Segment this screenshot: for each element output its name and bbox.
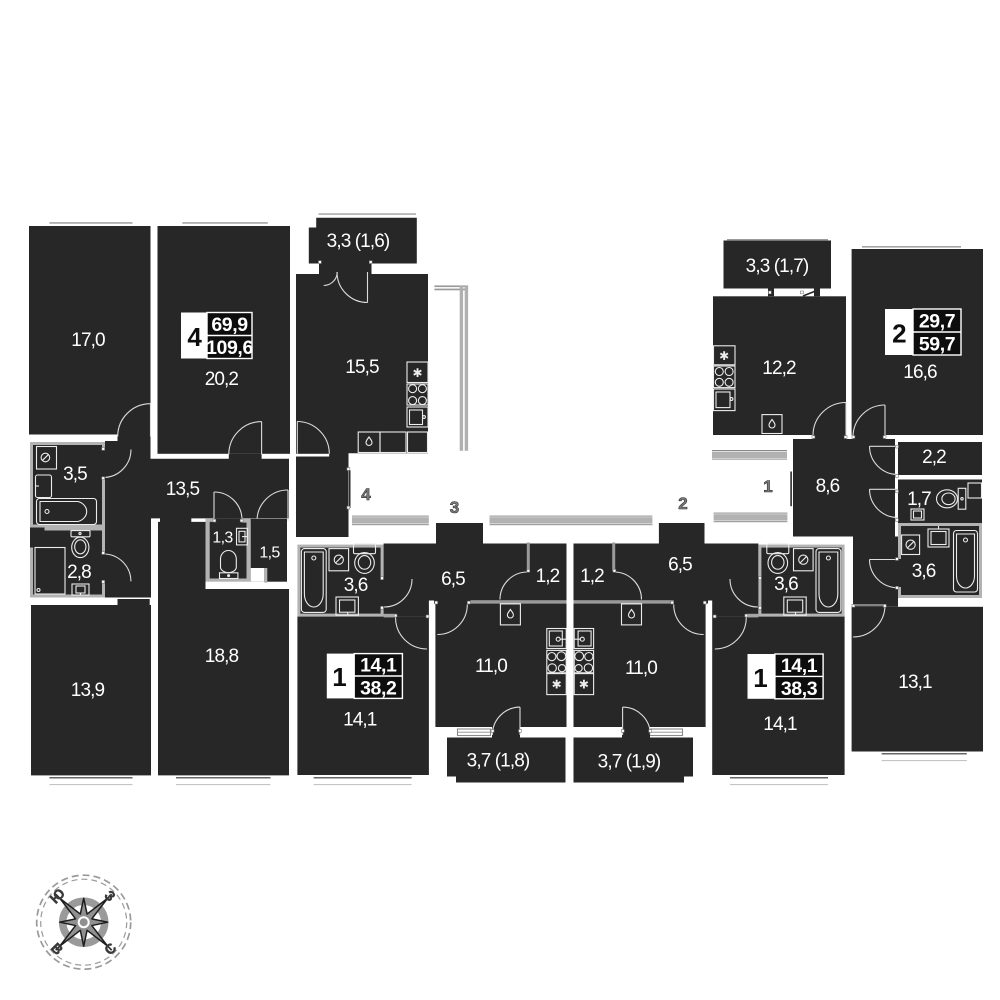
svg-text:69,9: 69,9 <box>211 314 248 336</box>
svg-text:12,2: 12,2 <box>762 358 796 379</box>
svg-text:13,5: 13,5 <box>166 479 200 500</box>
svg-text:6,5: 6,5 <box>441 569 465 590</box>
svg-text:20,2: 20,2 <box>205 369 239 390</box>
svg-text:14,1: 14,1 <box>781 655 818 677</box>
svg-text:3,7 (1,8): 3,7 (1,8) <box>467 751 530 772</box>
svg-text:109,6: 109,6 <box>206 337 253 359</box>
svg-text:13,1: 13,1 <box>898 672 932 693</box>
svg-text:2: 2 <box>892 319 906 349</box>
svg-text:6,5: 6,5 <box>668 555 692 576</box>
svg-text:3: 3 <box>450 498 459 517</box>
svg-text:29,7: 29,7 <box>919 311 955 333</box>
svg-text:3,7 (1,9): 3,7 (1,9) <box>598 752 661 773</box>
svg-text:✱: ✱ <box>579 678 589 692</box>
svg-text:14,1: 14,1 <box>343 710 377 731</box>
svg-text:1,2: 1,2 <box>580 566 604 587</box>
svg-text:14,1: 14,1 <box>360 655 397 677</box>
svg-text:16,6: 16,6 <box>903 362 937 383</box>
svg-text:2,8: 2,8 <box>67 562 91 583</box>
svg-text:3,6: 3,6 <box>912 561 936 582</box>
svg-text:✱: ✱ <box>552 678 562 692</box>
svg-text:11,0: 11,0 <box>475 656 507 677</box>
svg-text:3,6: 3,6 <box>774 574 798 595</box>
svg-text:38,2: 38,2 <box>360 678 397 700</box>
svg-text:11,0: 11,0 <box>625 658 657 679</box>
svg-text:3,5: 3,5 <box>63 464 87 485</box>
svg-text:2: 2 <box>678 494 687 513</box>
svg-text:1,2: 1,2 <box>536 566 560 587</box>
svg-text:15,5: 15,5 <box>345 357 379 378</box>
svg-text:1,5: 1,5 <box>259 545 280 562</box>
svg-text:2,2: 2,2 <box>922 447 946 468</box>
svg-text:1,3: 1,3 <box>212 530 233 547</box>
svg-text:8,6: 8,6 <box>816 476 840 497</box>
svg-text:17,0: 17,0 <box>71 330 105 351</box>
svg-text:1: 1 <box>763 477 772 496</box>
svg-text:3,6: 3,6 <box>344 575 368 596</box>
svg-text:3,3 (1,7): 3,3 (1,7) <box>746 256 809 277</box>
svg-text:1,7: 1,7 <box>907 489 931 510</box>
svg-text:3,3 (1,6): 3,3 (1,6) <box>327 231 390 252</box>
svg-text:14,1: 14,1 <box>763 714 797 735</box>
svg-text:18,8: 18,8 <box>205 646 239 667</box>
svg-text:59,7: 59,7 <box>919 334 955 356</box>
svg-text:✱: ✱ <box>719 349 729 363</box>
svg-text:38,3: 38,3 <box>781 678 818 700</box>
svg-text:13,9: 13,9 <box>71 680 105 701</box>
svg-text:✱: ✱ <box>412 366 422 380</box>
svg-text:4: 4 <box>187 322 202 352</box>
svg-text:1: 1 <box>332 662 346 692</box>
svg-text:1: 1 <box>753 663 767 693</box>
svg-text:4: 4 <box>361 485 371 504</box>
